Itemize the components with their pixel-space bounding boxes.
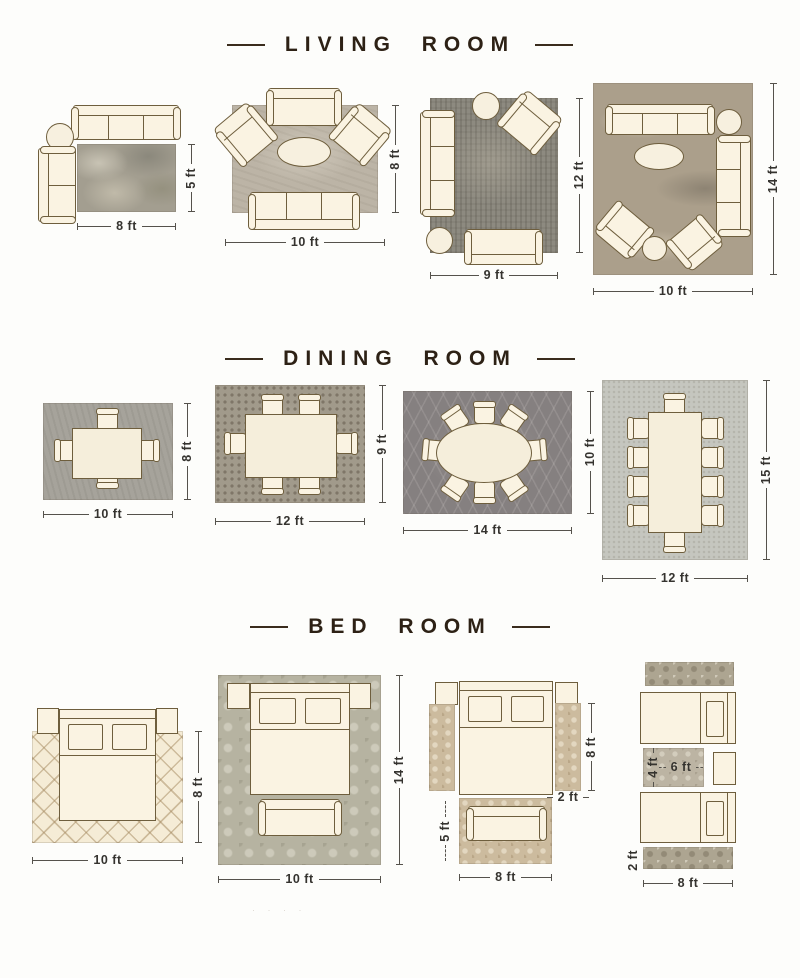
living-layout-8x5: 8 ft 5 ft	[30, 95, 202, 240]
title-dash-left	[225, 358, 263, 360]
dim-line	[579, 98, 580, 157]
dim-line	[590, 391, 591, 434]
dim-label: 8 ft	[180, 437, 194, 466]
depth-dimension: 14 ft	[765, 83, 781, 275]
sofa-seats	[49, 149, 75, 221]
dining-table	[72, 428, 142, 479]
sofa-back	[608, 105, 712, 114]
dim-line	[766, 380, 767, 452]
sofa-back	[421, 113, 431, 214]
headboard	[727, 693, 735, 743]
bench	[468, 806, 545, 841]
bench-seat	[261, 810, 339, 835]
runner-rug	[643, 847, 733, 869]
dim-line	[602, 578, 656, 579]
sofa-3-seat	[607, 104, 713, 135]
dining-layout-14x10: 14 ft 10 ft	[403, 388, 599, 536]
sofa-cushion	[717, 170, 740, 202]
dim-line	[225, 242, 286, 243]
nightstand	[156, 708, 178, 734]
runner-width-dimension: 2 ft	[547, 790, 589, 804]
sofa-cushion	[49, 149, 75, 186]
dim-line	[399, 675, 400, 752]
title-dash-left	[250, 626, 288, 628]
title-dash-right	[512, 626, 550, 628]
dim-line	[694, 578, 748, 579]
dim-label: 8 ft	[490, 870, 521, 884]
title-dash-left	[227, 44, 265, 46]
pillow-row	[251, 693, 349, 730]
pillow	[305, 698, 342, 724]
headboard	[251, 684, 349, 693]
sofa-cushion	[144, 116, 178, 139]
pillow-row	[460, 691, 552, 728]
dim-line	[773, 83, 774, 161]
dining-chair	[701, 505, 720, 526]
sofa-cushion	[49, 186, 75, 222]
pillow	[511, 696, 545, 722]
nightstand	[435, 682, 458, 705]
runner-rug	[645, 662, 734, 686]
long-dining-table	[648, 412, 702, 533]
sofa-3-seat	[420, 112, 455, 215]
dim-line	[198, 801, 199, 843]
runner-width-dimension: 2 ft	[625, 846, 641, 869]
width-dimension: 10 ft	[32, 853, 183, 867]
sofa-cushion	[431, 113, 454, 147]
dim-label: 10 ft	[286, 235, 324, 249]
sofa-back	[251, 219, 357, 229]
dim-line	[507, 530, 572, 531]
dim-line	[591, 703, 592, 733]
headboard	[460, 682, 552, 691]
dim-line	[187, 466, 188, 500]
depth-dimension: 12 ft	[571, 98, 587, 253]
sofa-cushion	[467, 230, 540, 254]
dim-label: 14 ft	[468, 523, 506, 537]
sofa-cushion	[608, 114, 643, 134]
rug-size-guide: LIVING ROOM 8 ft 5 ft	[0, 0, 800, 978]
width-dimension: 14 ft	[403, 523, 572, 537]
sofa-3-seat	[716, 137, 751, 235]
bedroom-layout-10x14: 10 ft 14 ft	[215, 673, 407, 885]
oval-coffee-table	[634, 143, 684, 170]
depth-dimension: 8 ft	[179, 403, 195, 500]
dim-line	[590, 471, 591, 514]
dim-line	[591, 761, 592, 791]
sofa-seats	[717, 138, 740, 234]
dim-line	[187, 403, 188, 437]
dim-line	[77, 226, 111, 227]
dim-line	[319, 879, 381, 880]
dim-line	[643, 883, 673, 884]
bench-seat	[469, 817, 544, 840]
foot-rug-depth-dimension: 5 ft	[437, 801, 453, 861]
dining-chair	[701, 418, 720, 439]
dim-line	[445, 801, 446, 817]
pillow	[259, 698, 296, 724]
section-title-text: DINING ROOM	[283, 347, 517, 371]
dim-line	[703, 883, 733, 884]
dim-line	[382, 458, 383, 503]
dim-label: 9 ft	[479, 268, 510, 282]
bedroom-layout-10x8: 10 ft 8 ft	[30, 695, 210, 870]
loveseat	[268, 88, 340, 126]
dining-layout-12x15: 12 ft 15 ft	[600, 375, 780, 585]
dim-line	[659, 767, 666, 768]
dim-label: 4 ft	[646, 753, 660, 782]
dim-label: 5 ft	[184, 164, 198, 193]
sofa-back	[269, 89, 339, 99]
sofa-cushion	[431, 147, 454, 181]
width-dimension: 12 ft	[602, 571, 748, 585]
dim-label: 14 ft	[766, 161, 780, 197]
runner-rug	[555, 703, 581, 791]
sofa-back	[740, 138, 750, 234]
dim-label: 5 ft	[438, 817, 452, 846]
dining-table	[245, 414, 337, 478]
living-layout-10x14: 10 ft 14 ft	[593, 78, 785, 308]
bench-cushion	[469, 817, 544, 840]
pillow	[706, 701, 724, 737]
dim-line	[395, 105, 396, 145]
bed-body	[251, 730, 349, 794]
bench-back	[469, 807, 544, 817]
sofa-cushion	[74, 116, 109, 139]
width-dimension: 8 ft	[77, 219, 176, 233]
dim-line	[399, 788, 400, 865]
dim-line	[395, 173, 396, 213]
dim-label: 14 ft	[392, 752, 406, 788]
dim-line	[766, 488, 767, 560]
nightstand	[37, 708, 59, 734]
foot-rug-width-dimension: 8 ft	[459, 870, 552, 884]
dim-line	[142, 226, 176, 227]
section-title-living-room: LIVING ROOM	[0, 28, 800, 62]
loveseat	[466, 229, 541, 265]
dim-label: 10 ft	[89, 507, 127, 521]
dim-label: 9 ft	[375, 430, 389, 459]
dim-line	[593, 291, 654, 292]
dim-line	[218, 879, 280, 880]
dim-line	[127, 860, 183, 861]
bench-cushion	[261, 810, 339, 835]
living-layout-9x12: 9 ft 12 ft	[415, 85, 593, 287]
dim-line	[696, 767, 703, 768]
accent-rug-width-dimension: 6 ft	[659, 760, 703, 774]
sofa-seats	[251, 193, 357, 219]
nightstand	[348, 683, 371, 709]
round-side-table	[642, 236, 667, 261]
nightstand	[227, 683, 250, 709]
bed-fold-line	[700, 693, 701, 743]
dim-label: 10 ft	[88, 853, 126, 867]
living-layout-10x8: 10 ft 8 ft	[215, 85, 407, 253]
section-title-text: LIVING ROOM	[285, 33, 515, 57]
bench-back	[261, 800, 339, 810]
width-dimension: 12 ft	[215, 514, 365, 528]
sofa-seats	[467, 230, 540, 254]
dim-label: 6 ft	[666, 760, 697, 774]
depth-dimension: 8 ft	[190, 731, 206, 843]
depth-dimension: 15 ft	[758, 380, 774, 560]
queen-bed	[459, 681, 553, 795]
runner-length-dimension: 8 ft	[643, 876, 733, 890]
nightstand	[555, 682, 578, 705]
pillow	[112, 724, 147, 750]
dim-line	[773, 197, 774, 275]
rug	[77, 144, 176, 212]
twin-bed	[640, 792, 736, 843]
dim-label: 8 ft	[388, 145, 402, 174]
pillow	[468, 696, 502, 722]
title-dash-right	[535, 44, 573, 46]
dim-line	[191, 144, 192, 164]
dim-line	[191, 192, 192, 212]
dining-chair	[335, 433, 354, 454]
sofa-cushion	[269, 99, 339, 125]
dim-label: 12 ft	[572, 157, 586, 193]
dining-layout-12x9: 12 ft 9 ft	[215, 385, 393, 530]
bed-body	[460, 728, 552, 794]
dim-line	[403, 530, 468, 531]
oval-coffee-table	[277, 137, 331, 167]
bedroom-layout-twin-beds: 4 ft 6 ft 2 ft 8 ft	[625, 658, 795, 900]
pillow	[706, 801, 724, 836]
dining-chair	[474, 481, 495, 500]
sofa-back	[74, 106, 178, 116]
sofa-cushion	[643, 114, 678, 134]
dim-label: 8 ft	[584, 733, 598, 762]
dim-line	[32, 860, 88, 861]
dim-label: 2 ft	[553, 790, 584, 804]
dim-line	[583, 797, 589, 798]
sofa-cushion	[287, 193, 323, 219]
section-title-bed-room: BED ROOM	[0, 610, 800, 644]
dim-line	[430, 275, 479, 276]
dim-line	[324, 242, 385, 243]
sofa-back	[39, 149, 49, 221]
dim-label: 12 ft	[656, 571, 694, 585]
dim-label: 8 ft	[191, 773, 205, 802]
dim-label: 8 ft	[111, 219, 142, 233]
dim-label: 2 ft	[626, 846, 640, 875]
sofa-3-seat	[73, 105, 179, 140]
sofa-cushion	[717, 203, 740, 234]
dim-line	[127, 514, 173, 515]
sofa-cushion	[717, 138, 740, 170]
round-side-table	[472, 92, 500, 120]
dim-line	[459, 877, 490, 878]
pillow	[68, 724, 103, 750]
sofa-seats	[431, 113, 454, 214]
dim-line	[309, 521, 365, 522]
dining-chair	[474, 405, 495, 424]
width-dimension: 10 ft	[225, 235, 385, 249]
depth-dimension: 8 ft	[387, 105, 403, 213]
runner-rug	[429, 704, 455, 791]
dim-label: 10 ft	[280, 872, 318, 886]
dim-label: 10 ft	[583, 434, 597, 470]
sofa-back	[467, 254, 540, 264]
title-dash-right	[537, 358, 575, 360]
dim-line	[215, 521, 271, 522]
depth-dimension: 14 ft	[391, 675, 407, 865]
sofa-cushion	[322, 193, 357, 219]
sofa-3-seat	[250, 192, 358, 230]
dim-label: 15 ft	[759, 452, 773, 488]
dim-line	[653, 782, 654, 787]
width-dimension: 9 ft	[430, 268, 558, 282]
watermark-dots: · · · ·	[252, 905, 307, 915]
depth-dimension: 5 ft	[183, 144, 199, 212]
headboard	[60, 710, 155, 719]
dim-label: 8 ft	[673, 876, 704, 890]
headboard	[727, 793, 735, 842]
sofa-seats	[269, 99, 339, 125]
twin-bed	[640, 692, 736, 744]
dim-line	[509, 275, 558, 276]
sofa-cushion	[678, 114, 712, 134]
nightstand	[713, 752, 736, 785]
dim-line	[198, 731, 199, 773]
round-side-table	[716, 109, 742, 135]
queen-bed	[59, 709, 156, 821]
section-title-text: BED ROOM	[308, 615, 492, 639]
width-dimension: 10 ft	[43, 507, 173, 521]
queen-bed	[250, 683, 350, 795]
dim-line	[43, 514, 89, 515]
dining-chair	[701, 447, 720, 468]
dim-label: 12 ft	[271, 514, 309, 528]
bed-body	[60, 756, 155, 820]
width-dimension: 10 ft	[593, 284, 753, 298]
section-title-dining-room: DINING ROOM	[0, 342, 800, 376]
bed-fold-line	[700, 793, 701, 842]
depth-dimension: 10 ft	[582, 391, 598, 514]
dim-line	[382, 385, 383, 430]
dim-line	[521, 877, 552, 878]
pillow-row	[60, 719, 155, 756]
bench	[260, 799, 340, 836]
sofa-seats	[74, 116, 178, 139]
width-dimension: 10 ft	[218, 872, 381, 886]
bedroom-layout-runners: 8 ft 2 ft 5 ft 8 ft	[425, 680, 603, 885]
dim-line	[445, 845, 446, 861]
runner-length-dimension: 8 ft	[583, 703, 599, 791]
oval-dining-table	[436, 423, 532, 483]
sofa-cushion	[109, 116, 144, 139]
dining-chair	[701, 476, 720, 497]
dim-line	[579, 194, 580, 253]
lounge-chair	[38, 148, 76, 222]
dim-line	[692, 291, 753, 292]
round-side-table	[426, 227, 453, 254]
sofa-cushion	[251, 193, 287, 219]
sofa-seats	[608, 114, 712, 134]
dining-layout-10x8: 10 ft 8 ft	[35, 395, 200, 525]
dim-label: 10 ft	[654, 284, 692, 298]
sofa-cushion	[431, 181, 454, 214]
depth-dimension: 9 ft	[374, 385, 390, 503]
